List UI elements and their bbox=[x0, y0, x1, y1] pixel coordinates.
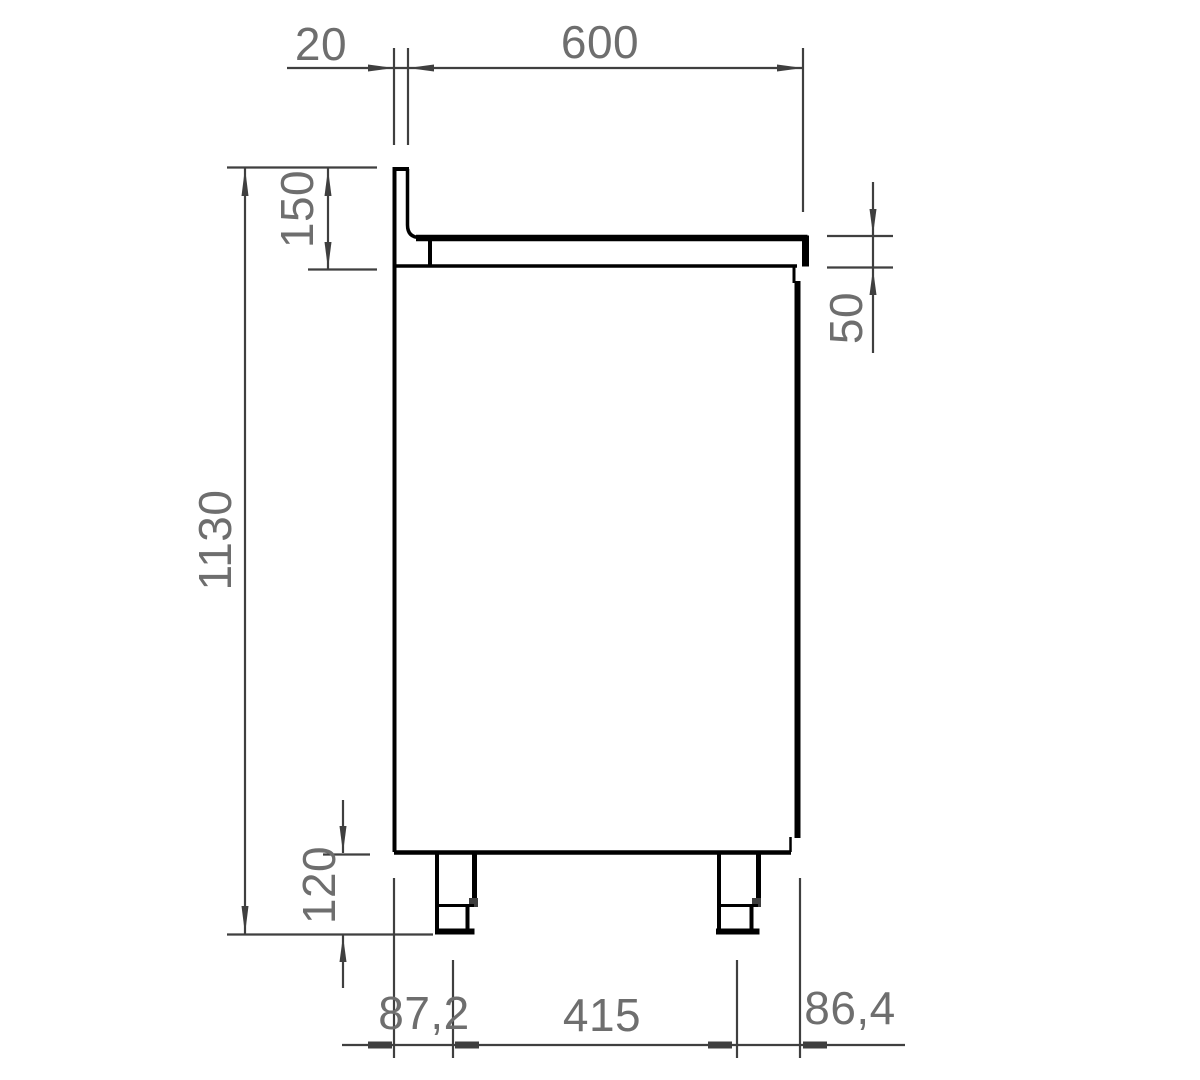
cabinet-side-view-drawing: 20 600 1130 150 120 bbox=[0, 0, 1200, 1080]
dim-label-backsplash-thickness: 20 bbox=[295, 18, 347, 70]
technical-drawing-page: 20 600 1130 150 120 bbox=[0, 0, 1200, 1080]
cabinet-outline bbox=[394, 169, 808, 853]
dim-top-group: 20 600 bbox=[287, 16, 803, 212]
rear-leg bbox=[435, 853, 478, 932]
dim-label-leg-spacing: 415 bbox=[563, 989, 641, 1041]
dim-label-depth: 600 bbox=[561, 16, 639, 68]
dim-label-total-height: 1130 bbox=[189, 490, 241, 591]
dim-label-front-leg-offset: 86,4 bbox=[804, 982, 896, 1034]
dim-label-worktop-edge-thickness: 50 bbox=[820, 292, 872, 344]
front-leg bbox=[716, 853, 761, 932]
dim-bottom-group: 87,2 415 86,4 bbox=[342, 878, 905, 1058]
dim-label-rear-leg-offset: 87,2 bbox=[378, 987, 470, 1039]
dim-right-group: 50 bbox=[820, 182, 893, 353]
dim-label-leg-height: 120 bbox=[293, 846, 345, 924]
dim-label-backsplash-height: 150 bbox=[271, 170, 323, 248]
